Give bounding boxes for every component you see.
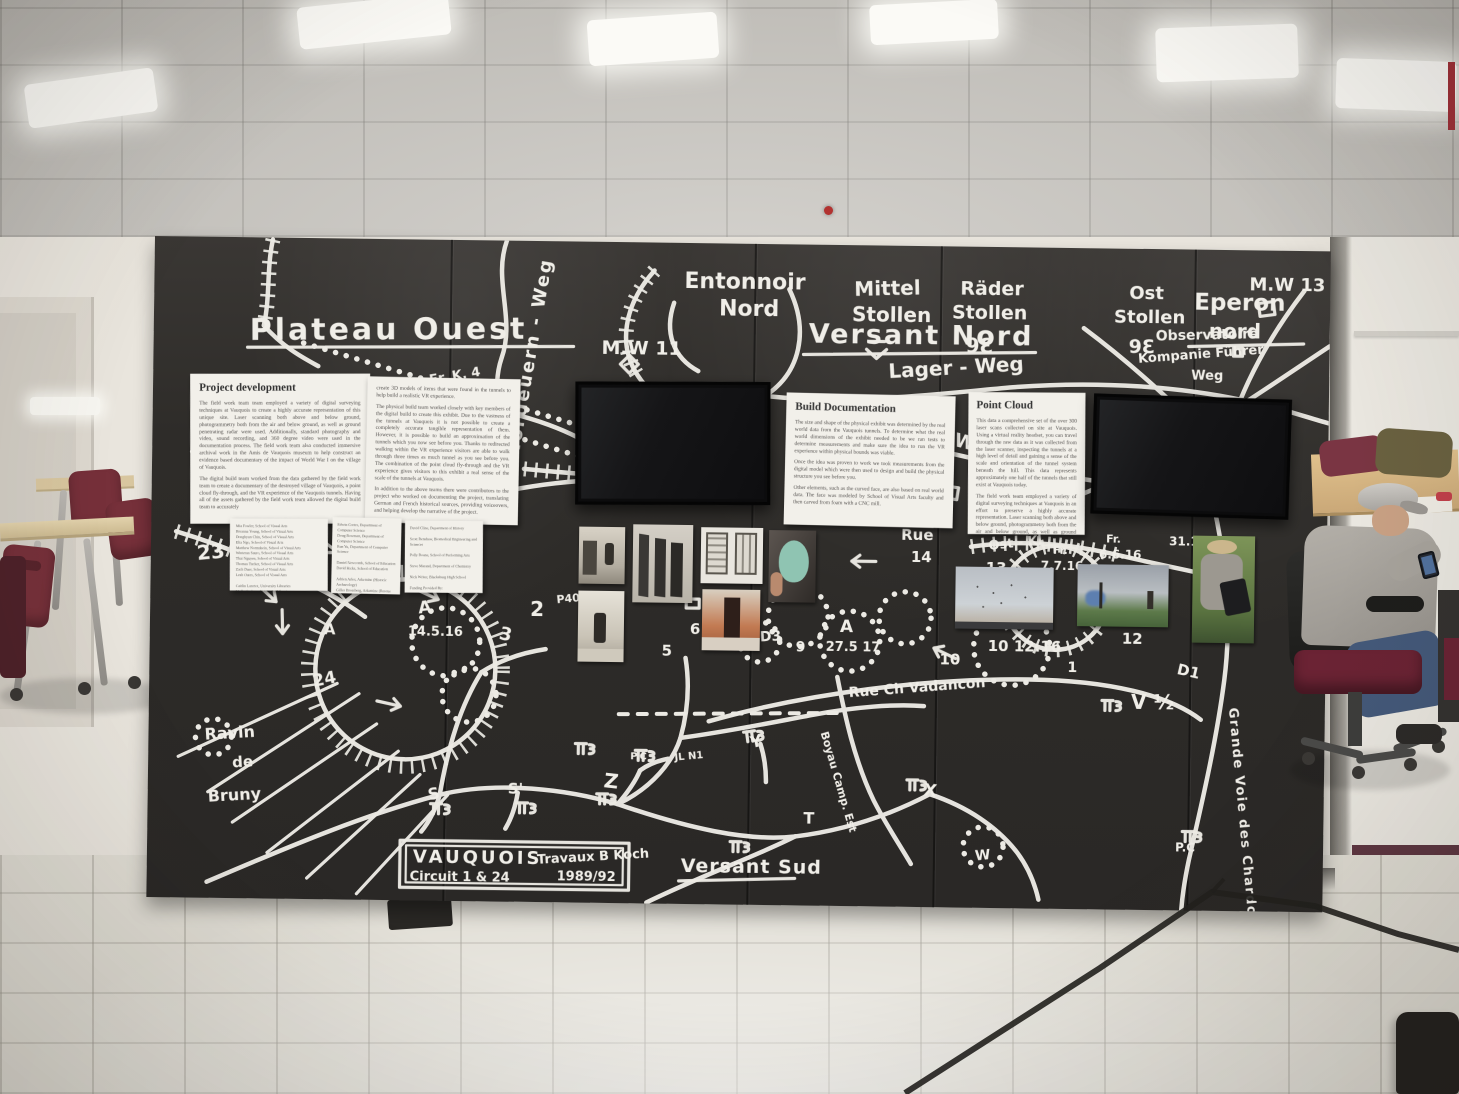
map-label-kompanie-weg: Weg — [1191, 369, 1223, 384]
photo-floor — [702, 637, 760, 651]
exhibit-wall: Plateau Ouest Nordeuern - Weg Entonnoir … — [146, 236, 1331, 912]
paragraph: In addition to the above teams there wer… — [374, 485, 509, 516]
map-label-fr-b: Fr. — [1106, 532, 1121, 545]
map-label-24: 24 — [311, 667, 338, 691]
person-head — [1372, 505, 1409, 536]
map-label-6616: 6.6.16 — [1099, 547, 1142, 562]
credits-panel-right: David Cline, Department of History Scott… — [405, 521, 483, 593]
map-label-d3: D3 — [759, 628, 781, 645]
photo-dark-wall — [654, 538, 666, 597]
map-label-5: 5 — [661, 642, 672, 660]
photo-dark-wall — [670, 542, 683, 597]
credits-text: David Cline, Department of History Scott… — [409, 526, 478, 593]
photo-antenna — [1099, 582, 1102, 608]
red-object-on-table — [1436, 492, 1452, 501]
photo-hallway-figure — [578, 527, 625, 585]
person-shoe — [1396, 724, 1442, 744]
photo-person-silhouette — [594, 613, 606, 643]
exhibit-room-photo: Plateau Ouest Nordeuern - Weg Entonnoir … — [0, 0, 1459, 1094]
paragraph: The physical build team worked closely w… — [375, 403, 511, 484]
office-chair-seat-maroon — [1294, 650, 1422, 694]
map-label-s-prime: S' — [508, 780, 524, 798]
panel-title: Point Cloud — [976, 399, 1077, 412]
backpack-on-floor — [1396, 1012, 1459, 1094]
photo-panel-drawing — [706, 532, 729, 574]
map-label-versant-sud: Versant Sud — [681, 855, 822, 879]
map-label-a-mid: A — [840, 617, 854, 637]
chair-caster — [1302, 752, 1315, 765]
map-label-bruny: Bruny — [207, 784, 262, 806]
photo-dark-wall — [638, 534, 649, 598]
map-label-ost: Ost — [1129, 283, 1164, 304]
tv-dark-screen — [1097, 400, 1286, 514]
panel-body: The field work team team employed a vari… — [199, 400, 360, 511]
map-label-entonnoir: Entonnoir — [684, 269, 806, 296]
office-chair-post — [1348, 692, 1362, 746]
map-label-w: W — [974, 847, 991, 864]
paragraph: The field work team employed a variety o… — [975, 493, 1076, 535]
map-label-2: 2 — [530, 597, 544, 621]
ceiling-light-panel — [869, 0, 999, 45]
photo-exhibit-construction — [632, 524, 693, 603]
ceiling-light-panel — [1155, 24, 1299, 83]
photo-scan-points — [967, 579, 1039, 614]
map-label-observatoire: Observatoire — [1156, 326, 1259, 344]
credits-panel-left: Mia Fowler, School of Visual Arts Breann… — [230, 519, 328, 591]
red-door-frame — [1448, 62, 1455, 130]
photo-hallway-person — [577, 591, 624, 663]
paragraph: Once the idea was proven to work we took… — [794, 458, 945, 483]
tv-screen-left — [575, 382, 770, 506]
whiteboard-tray — [1354, 331, 1459, 336]
map-label-ost-stollen: Stollen — [1114, 307, 1186, 329]
ceiling — [0, 0, 1459, 237]
table-caster — [10, 688, 23, 701]
map-label-1: 1 — [1067, 660, 1077, 676]
panel-body: This data a comprehensive set of the ove… — [975, 417, 1076, 535]
chair-caster — [1352, 766, 1365, 779]
photo-taskbar — [955, 622, 1053, 630]
chair-caster — [1404, 758, 1417, 771]
sign-vauquois: VAUQUOIS — [413, 846, 543, 869]
credits-text: Edwin Cortes, Department of Computer Sci… — [335, 522, 396, 594]
photo-sun-hat — [1207, 540, 1237, 554]
panel-title: Build Documentation — [795, 401, 946, 417]
map-label-x: X — [923, 780, 938, 801]
map-label-mw11: M.W 11 — [601, 337, 681, 360]
paragraph: The field work team team employed a vari… — [199, 400, 360, 471]
panel-point-cloud: Point Cloud This data a comprehensive se… — [968, 392, 1086, 535]
chair-maroon-dark — [0, 556, 26, 678]
map-label-d1: D1 — [1175, 660, 1201, 683]
map-label-27517: 27.5 17 — [826, 640, 881, 656]
map-label-rue: Rue — [901, 526, 934, 544]
map-label-p40: P40 — [556, 591, 581, 606]
map-label-t: T — [803, 809, 814, 828]
ceiling-light-panel — [296, 0, 452, 50]
paragraph: Other elements, such as the curved face,… — [793, 484, 944, 509]
map-label-3: 3 — [497, 623, 514, 646]
map-label-101216: 10 12.16 — [988, 637, 1062, 656]
paragraph: This data a comprehensive set of the ove… — [976, 417, 1077, 489]
backpack-on-table-olive — [1374, 427, 1453, 478]
photo-hand — [770, 572, 782, 596]
map-label-pc-mid: P.C — [630, 751, 647, 762]
map-label-entonnoir-nord: Nord — [719, 296, 779, 322]
panel-body: create 3D models of items that were foun… — [374, 384, 511, 516]
map-label-9: 9 — [796, 639, 806, 655]
photo-cnc-panel-designs — [701, 527, 764, 584]
photo-ruin-silhouette — [1147, 591, 1153, 609]
map-label-rue-ch: Rue Ch Vadancon — [848, 675, 986, 701]
panel-project-development: Project development The field work team … — [190, 374, 370, 524]
map-label-mittel: Mittel — [854, 275, 921, 300]
paragraph: create 3D models of items that were foun… — [376, 384, 511, 401]
map-label-lager-weg: Lager - Weg — [888, 351, 1025, 383]
panel-build-documentation: Build Documentation The size and shape o… — [784, 392, 956, 528]
panel-project-continuation: create 3D models of items that were foun… — [365, 376, 521, 525]
chair-maroon-sliver — [1444, 638, 1459, 700]
photo-person-with-tablet — [1192, 536, 1255, 644]
panel-body: The size and shape of the physical exhib… — [793, 419, 945, 509]
credits-panel-middle: Edwin Cortes, Department of Computer Sci… — [331, 517, 402, 594]
photo-dark-panel — [583, 541, 597, 575]
photo-panel-drawing — [735, 533, 758, 575]
photo-face-mask — [779, 540, 810, 582]
map-label-jl-n1: JL N1 — [673, 750, 704, 764]
photo-orange-corridor — [702, 589, 761, 651]
map-label-versant-nord: Versant Nord — [809, 319, 1034, 353]
map-label-10: 10 — [939, 650, 960, 668]
map-label-12: 12 — [1122, 630, 1143, 648]
map-label-mw13: M.W 13 — [1249, 274, 1325, 296]
map-label-v-half: V ½ — [1131, 690, 1174, 715]
photo-point-cloud-screenshot — [955, 567, 1054, 630]
credits-text: Mia Fowler, School of Visual Arts Breann… — [236, 524, 322, 591]
ceiling-light-panel — [587, 12, 720, 67]
photo-field-survey — [1077, 564, 1169, 627]
hallway-ceiling-light — [30, 397, 100, 415]
tv-dark-screen — [581, 388, 764, 499]
table-leg — [83, 538, 108, 686]
photo-foam-face-carving — [768, 530, 816, 603]
sign-circuit: Circuit 1 & 24 — [410, 869, 510, 885]
ceiling-light-panel — [1335, 58, 1457, 112]
table-caster — [128, 676, 141, 689]
map-label-z: Z — [603, 768, 620, 794]
sign-author: Travaux B Koch — [537, 846, 650, 867]
map-label-fr-a: Fr. — [1053, 544, 1068, 557]
paragraph: The size and shape of the physical exhib… — [794, 419, 945, 458]
map-label-pc-right: P.C — [1175, 840, 1195, 854]
map-label-de: de — [232, 752, 254, 771]
ceiling-light-panel — [24, 67, 159, 129]
map-label-14516: 14.5.16 — [408, 624, 463, 640]
table-leg — [52, 490, 67, 610]
office-chair-armrest — [1366, 596, 1424, 612]
paragraph: The digital build team worked from the d… — [199, 475, 360, 511]
table-caster — [78, 682, 91, 695]
photo-floor — [577, 649, 623, 663]
map-label-14: 14 — [911, 548, 932, 566]
cable-protector-ramp — [387, 896, 453, 930]
photo-tablet — [1219, 578, 1251, 616]
sign-years: 1989/92 — [557, 869, 616, 885]
map-label-6: 6 — [690, 620, 701, 638]
map-label-grande-voie: Grande Voie des Chardon — [1225, 707, 1260, 912]
map-label-rader: Räder — [960, 278, 1024, 301]
map-label-plateau-ouest: Plateau Ouest — [250, 312, 528, 348]
ceiling-fixture-red — [824, 206, 833, 215]
map-label-23: 23 — [196, 539, 226, 565]
photo-person-silhouette — [605, 543, 614, 565]
map-label-a-crater: A — [324, 620, 336, 638]
panel-title: Project development — [199, 382, 361, 394]
map-label-ravin: Ravin — [204, 722, 255, 744]
